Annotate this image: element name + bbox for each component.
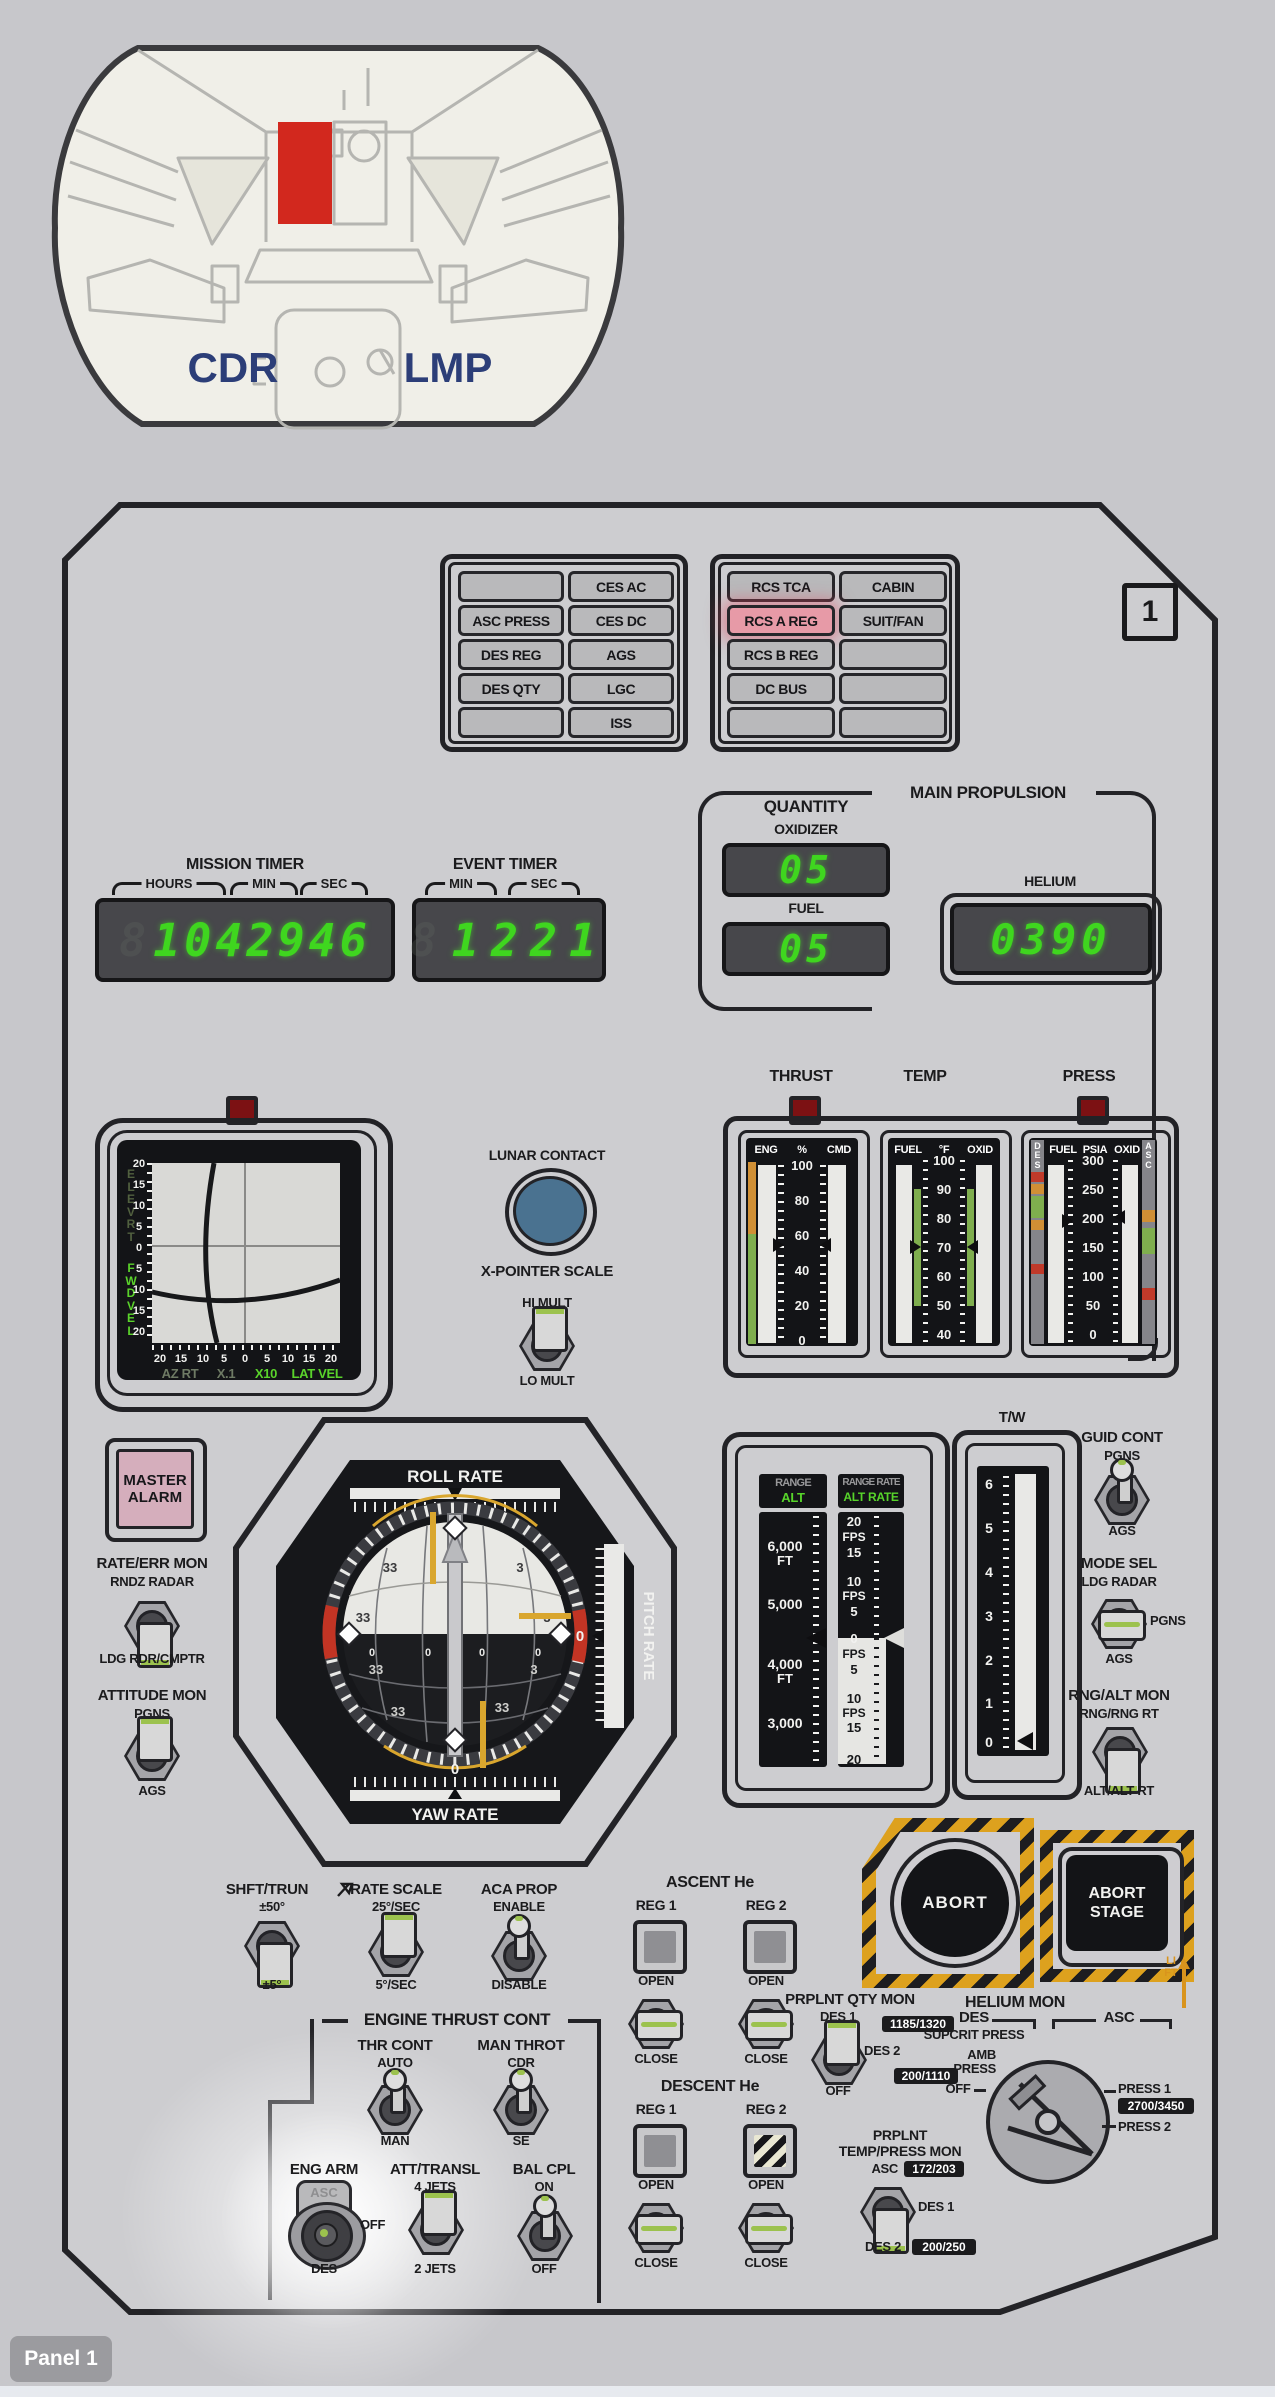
on-label: ON bbox=[494, 2180, 594, 2195]
svg-text:0: 0 bbox=[369, 1647, 375, 1659]
ags-label: AGS bbox=[1060, 1652, 1178, 1667]
warning-light bbox=[839, 673, 947, 704]
des2-badge: 200/250 bbox=[912, 2239, 976, 2255]
cmd-pointer bbox=[820, 1238, 831, 1252]
range-header: RANGE bbox=[759, 1477, 827, 1489]
cdr-label: CDR bbox=[188, 344, 279, 391]
master-alarm-button[interactable]: MASTER ALARM bbox=[116, 1449, 194, 1529]
lift-label: LIFT bbox=[1164, 1956, 1178, 1979]
off-label: OFF bbox=[938, 2082, 978, 2097]
warning-light: CES DC bbox=[568, 605, 674, 636]
descent-reg2-switch[interactable] bbox=[738, 2198, 794, 2256]
abort-button[interactable]: ABORT bbox=[901, 1849, 1009, 1957]
rng-alt-mon-title: RNG/ALT MON bbox=[1054, 1688, 1184, 1705]
aca-prop-title: ACA PROP bbox=[444, 1882, 594, 1899]
aca-prop-top-label: ENABLE bbox=[444, 1900, 594, 1915]
mode-sel-title: MODE SEL bbox=[1060, 1556, 1178, 1573]
prplnt-qty-mon-title: PRPLNT QTY MON bbox=[768, 1992, 932, 2009]
ldg-rdr-cmptr-label: LDG RDR/CMPTR bbox=[57, 1652, 247, 1667]
man-throt-title: MAN THROT bbox=[466, 2038, 576, 2055]
man-label: MAN bbox=[345, 2134, 445, 2149]
svg-text:0: 0 bbox=[479, 1647, 485, 1659]
close-label: CLOSE bbox=[611, 2052, 701, 2067]
warning-light: CABIN bbox=[839, 571, 947, 602]
ascent-reg1-talkback bbox=[633, 1920, 687, 1974]
close-label: CLOSE bbox=[611, 2256, 701, 2271]
warning-light: DC BUS bbox=[727, 673, 835, 704]
helium-display: 0390 bbox=[950, 903, 1152, 975]
oxid-col: OXID bbox=[962, 1144, 998, 1156]
asc-bracket-label: ASC bbox=[1098, 2010, 1140, 2027]
reg1-label: REG 1 bbox=[611, 2102, 701, 2118]
shft-trun-switch[interactable] bbox=[244, 1916, 300, 1974]
ldg-radar-label: LDG RADAR bbox=[1060, 1575, 1178, 1590]
guid-cont-switch[interactable] bbox=[1094, 1470, 1150, 1528]
oxid-temp-pointer bbox=[967, 1240, 978, 1254]
eng-pointer bbox=[773, 1238, 784, 1252]
warning-light: ASC PRESS bbox=[458, 605, 564, 636]
abort-stage-button[interactable]: ABORT STAGE bbox=[1066, 1855, 1168, 1951]
lo-mult-label: LO MULT bbox=[477, 1374, 617, 1389]
tw-title: T/W bbox=[982, 1410, 1042, 1427]
pct-col: % bbox=[790, 1144, 814, 1156]
ascent-he-title: ASCENT He bbox=[630, 1874, 790, 1892]
asc-badge: 172/203 bbox=[904, 2161, 964, 2177]
mission-timer-title: MISSION TIMER bbox=[95, 856, 395, 874]
des1-label: DES 1 bbox=[918, 2200, 974, 2215]
alt-alt-rt-label: ALT/ALT RT bbox=[1054, 1784, 1184, 1799]
warning-light bbox=[727, 707, 835, 738]
xpointer-scale-switch[interactable] bbox=[519, 1316, 575, 1374]
attitude-mon-switch[interactable] bbox=[124, 1726, 180, 1784]
descent-he-title: DESCENT He bbox=[630, 2078, 790, 2096]
des2-label: DES 2 bbox=[856, 2240, 910, 2255]
mode-sel-switch[interactable] bbox=[1091, 1594, 1147, 1652]
az-rt-label: AZ RT bbox=[152, 1367, 208, 1382]
fdai: ROLL RATE 0 33 3 33 3 33 3 33 33 00 00 bbox=[232, 1416, 678, 1868]
warning-light: AGS bbox=[568, 639, 674, 670]
mission-timer-display: 1042946 bbox=[95, 898, 395, 982]
rndz-radar-label: RNDZ RADAR bbox=[72, 1575, 232, 1590]
rate-err-mon-switch[interactable] bbox=[124, 1596, 180, 1654]
panel-1-highlight bbox=[278, 122, 332, 224]
svg-text:33: 33 bbox=[383, 1560, 397, 1575]
prplnt-qty-mon-switch[interactable] bbox=[811, 2030, 867, 2088]
warning-light: DES REG bbox=[458, 639, 564, 670]
cmd-col: CMD bbox=[822, 1144, 856, 1156]
ascent-reg1-switch[interactable] bbox=[628, 1994, 684, 2052]
min-bracket: MIN bbox=[425, 882, 497, 895]
aca-prop-switch[interactable] bbox=[491, 1926, 547, 1984]
oxidizer-label: OXIDIZER bbox=[726, 822, 886, 838]
event-timer-display: 1221 bbox=[412, 898, 606, 982]
off-label: OFF bbox=[494, 2262, 594, 2277]
open-label: OPEN bbox=[721, 1974, 811, 1989]
svg-text:33: 33 bbox=[495, 1700, 509, 1715]
tp-mon-title1: PRPLNT bbox=[838, 2128, 962, 2144]
rate-scale-switch[interactable] bbox=[368, 1922, 424, 1980]
warning-light: CES AC bbox=[568, 571, 674, 602]
des-strip-label: DES bbox=[1032, 1142, 1043, 1170]
supcrit-press-label: SUPCRIT PRESS bbox=[902, 2028, 1046, 2043]
shft-trun-title: SHFT/TRUN bbox=[192, 1882, 342, 1899]
warning-light: SUIT/FAN bbox=[839, 605, 947, 636]
ags-label: AGS bbox=[72, 1784, 232, 1799]
sec-bracket: SEC bbox=[300, 882, 368, 895]
warning-light-active: RCS A REG bbox=[727, 605, 835, 636]
xpointer-scale-title: X-POINTER SCALE bbox=[477, 1264, 617, 1281]
fuel-temp-pointer bbox=[910, 1240, 921, 1254]
svg-text:0: 0 bbox=[576, 1628, 584, 1645]
eng-col: ENG bbox=[749, 1144, 783, 1156]
reg1-label: REG 1 bbox=[611, 1898, 701, 1914]
press1-badge: 2700/3450 bbox=[1118, 2098, 1194, 2114]
svg-text:3: 3 bbox=[530, 1662, 537, 1677]
press1-label: PRESS 1 bbox=[1118, 2082, 1190, 2097]
lmp-label: LMP bbox=[404, 344, 493, 391]
warning-light: LGC bbox=[568, 673, 674, 704]
press-title: PRESS bbox=[1038, 1068, 1140, 1086]
svg-text:3: 3 bbox=[516, 1560, 523, 1575]
open-label: OPEN bbox=[611, 1974, 701, 1989]
thrust-title: THRUST bbox=[750, 1068, 852, 1086]
descent-reg1-switch[interactable] bbox=[628, 2198, 684, 2256]
range-rate-header: RANGE RATE bbox=[838, 1477, 904, 1488]
att-transl-title: ATT/TRANSL bbox=[380, 2162, 490, 2179]
warning-light bbox=[839, 639, 947, 670]
x10-label: X10 bbox=[246, 1367, 286, 1382]
alt-header: ALT bbox=[759, 1491, 827, 1506]
open-label: OPEN bbox=[611, 2178, 701, 2193]
panel-1-screen: CDR LMP 1 CES AC ASC PRESS CES DC DES RE… bbox=[0, 0, 1275, 2397]
aca-prop-bottom-label: DISABLE bbox=[444, 1978, 594, 1993]
warning-light: RCS TCA bbox=[727, 571, 835, 602]
rng-alt-mon-switch[interactable] bbox=[1092, 1722, 1148, 1780]
fuel-label: FUEL bbox=[726, 901, 886, 917]
thr-cont-switch[interactable] bbox=[367, 2080, 423, 2138]
helium-label: HELIUM bbox=[970, 874, 1130, 890]
des2-label: DES 2 bbox=[864, 2044, 924, 2059]
main-propulsion-title: MAIN PROPULSION bbox=[880, 783, 1096, 802]
fuel-display: 05 bbox=[722, 922, 890, 976]
svg-text:0: 0 bbox=[535, 1647, 541, 1659]
panel-number-badge: 1 bbox=[1122, 583, 1178, 641]
oxid-press-pointer bbox=[1114, 1210, 1125, 1224]
temp-title: TEMP bbox=[874, 1068, 976, 1086]
alt-pointer bbox=[806, 1628, 826, 1648]
tp-mon-title2: TEMP/PRESS MON bbox=[818, 2144, 982, 2160]
press2-label: PRESS 2 bbox=[1118, 2120, 1190, 2135]
svg-text:0: 0 bbox=[425, 1647, 431, 1659]
hours-bracket: HOURS bbox=[112, 882, 226, 895]
svg-text:0: 0 bbox=[451, 1761, 459, 1778]
svg-text:33: 33 bbox=[369, 1662, 383, 1677]
alt-rate-header: ALT RATE bbox=[838, 1491, 904, 1504]
man-throt-switch[interactable] bbox=[493, 2080, 549, 2138]
fuel-press-pointer bbox=[1062, 1214, 1073, 1228]
se-label: SE bbox=[466, 2134, 576, 2149]
warning-light bbox=[839, 707, 947, 738]
x1-label: X.1 bbox=[208, 1367, 244, 1382]
oxidizer-display: 05 bbox=[722, 843, 890, 897]
alt-rate-pointer bbox=[884, 1628, 904, 1648]
rng-rng-rt-label: RNG/RNG RT bbox=[1054, 1707, 1184, 1722]
bal-cpl-switch[interactable] bbox=[517, 2206, 573, 2264]
warning-light bbox=[458, 571, 564, 602]
eng-arm-des-label: DES bbox=[272, 2262, 376, 2277]
ags-label: AGS bbox=[1068, 1524, 1176, 1539]
sec-bracket: SEC bbox=[508, 882, 580, 895]
warning-light: ISS bbox=[568, 707, 674, 738]
asc-label: ASC bbox=[850, 2162, 898, 2177]
quantity-title: QUANTITY bbox=[726, 797, 886, 816]
ascent-reg2-talkback bbox=[743, 1920, 797, 1974]
reg2-label: REG 2 bbox=[721, 2102, 811, 2118]
lunar-contact-label: LUNAR CONTACT bbox=[467, 1148, 627, 1164]
thr-cont-title: THR CONT bbox=[345, 2038, 445, 2055]
tp-mon-switch[interactable] bbox=[860, 2182, 916, 2240]
bal-cpl-title: BAL CPL bbox=[494, 2162, 594, 2179]
xpointer-needles bbox=[117, 1140, 361, 1380]
att-transl-switch[interactable] bbox=[408, 2200, 464, 2258]
warning-light: RCS B REG bbox=[727, 639, 835, 670]
eng-arm-off-label: OFF bbox=[360, 2218, 404, 2233]
lat-vel-label: LAT VEL bbox=[286, 1367, 348, 1382]
attitude-mon-title: ATTITUDE MON bbox=[72, 1688, 232, 1705]
engine-thrust-cont-title: ENGINE THRUST CONT bbox=[346, 2010, 568, 2029]
footer-panel-tab[interactable]: Panel 1 bbox=[10, 2336, 112, 2382]
eng-arm-switch[interactable]: ASC bbox=[286, 2180, 362, 2270]
open-label: OPEN bbox=[721, 2178, 811, 2193]
event-timer-title: EVENT TIMER bbox=[405, 856, 605, 874]
fuel-col: FUEL bbox=[889, 1144, 927, 1156]
reg2-label: REG 2 bbox=[721, 1898, 811, 1914]
close-label: CLOSE bbox=[721, 2052, 811, 2067]
tw-pointer bbox=[1017, 1732, 1033, 1750]
guid-cont-title: GUID CONT bbox=[1068, 1430, 1176, 1447]
min-bracket: MIN bbox=[230, 882, 298, 895]
roll-rate-label: ROLL RATE bbox=[407, 1467, 503, 1486]
rate-err-mon-title: RATE/ERR MON bbox=[72, 1556, 232, 1573]
descent-reg1-talkback bbox=[633, 2124, 687, 2178]
lm-cabin-diagram: CDR LMP bbox=[28, 10, 650, 462]
off-label: OFF bbox=[800, 2084, 876, 2099]
close-label: CLOSE bbox=[721, 2256, 811, 2271]
descent-reg2-talkback-barberpole bbox=[743, 2124, 797, 2178]
yaw-rate-label: YAW RATE bbox=[412, 1805, 499, 1824]
2jets-label: 2 JETS bbox=[380, 2262, 490, 2277]
pgns-right-label: PGNS bbox=[1150, 1614, 1198, 1629]
svg-text:33: 33 bbox=[356, 1610, 370, 1625]
bottom-strip bbox=[0, 2386, 1275, 2397]
helium-mon-rotary[interactable] bbox=[980, 2056, 1116, 2192]
eng-arm-title: ENG ARM bbox=[272, 2162, 376, 2179]
svg-text:33: 33 bbox=[391, 1704, 405, 1719]
warning-light: DES QTY bbox=[458, 673, 564, 704]
pitch-rate-label: PITCH RATE bbox=[640, 1592, 657, 1681]
des-bracket-label: DES bbox=[954, 2010, 994, 2027]
warning-light bbox=[458, 707, 564, 738]
